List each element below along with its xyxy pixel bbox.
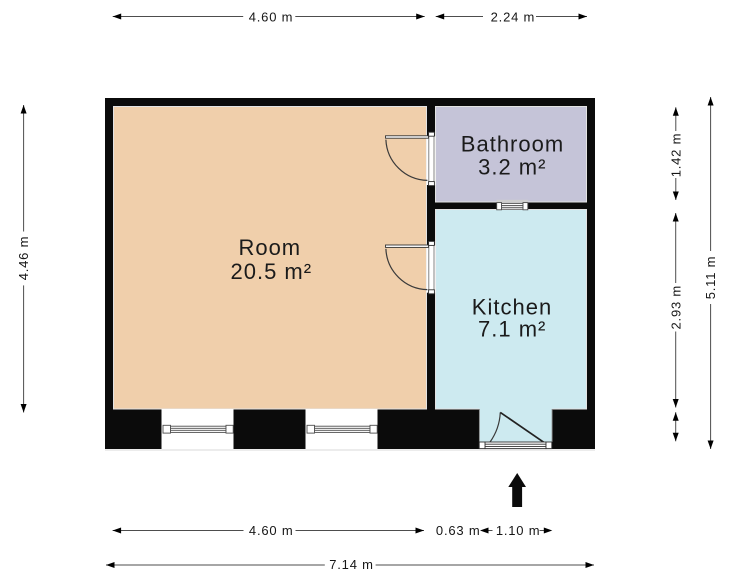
svg-text:20.5 m²: 20.5 m²: [231, 259, 313, 284]
svg-text:2.93 m: 2.93 m: [668, 285, 683, 330]
svg-text:4.46 m: 4.46 m: [16, 236, 31, 281]
svg-text:Bathroom: Bathroom: [461, 132, 564, 157]
svg-text:1.42 m: 1.42 m: [668, 133, 683, 178]
svg-text:Room: Room: [238, 235, 301, 260]
svg-text:5.11 m: 5.11 m: [703, 256, 718, 300]
svg-text:1.10 m: 1.10 m: [496, 523, 541, 538]
svg-text:2.24 m: 2.24 m: [491, 9, 536, 24]
svg-text:0.63 m: 0.63 m: [436, 523, 481, 538]
svg-text:7.1 m²: 7.1 m²: [478, 317, 546, 342]
svg-text:4.60 m: 4.60 m: [249, 9, 294, 24]
svg-text:7.14 m: 7.14 m: [329, 557, 374, 572]
svg-text:4.60 m: 4.60 m: [249, 523, 294, 538]
svg-text:3.2 m²: 3.2 m²: [478, 155, 546, 180]
